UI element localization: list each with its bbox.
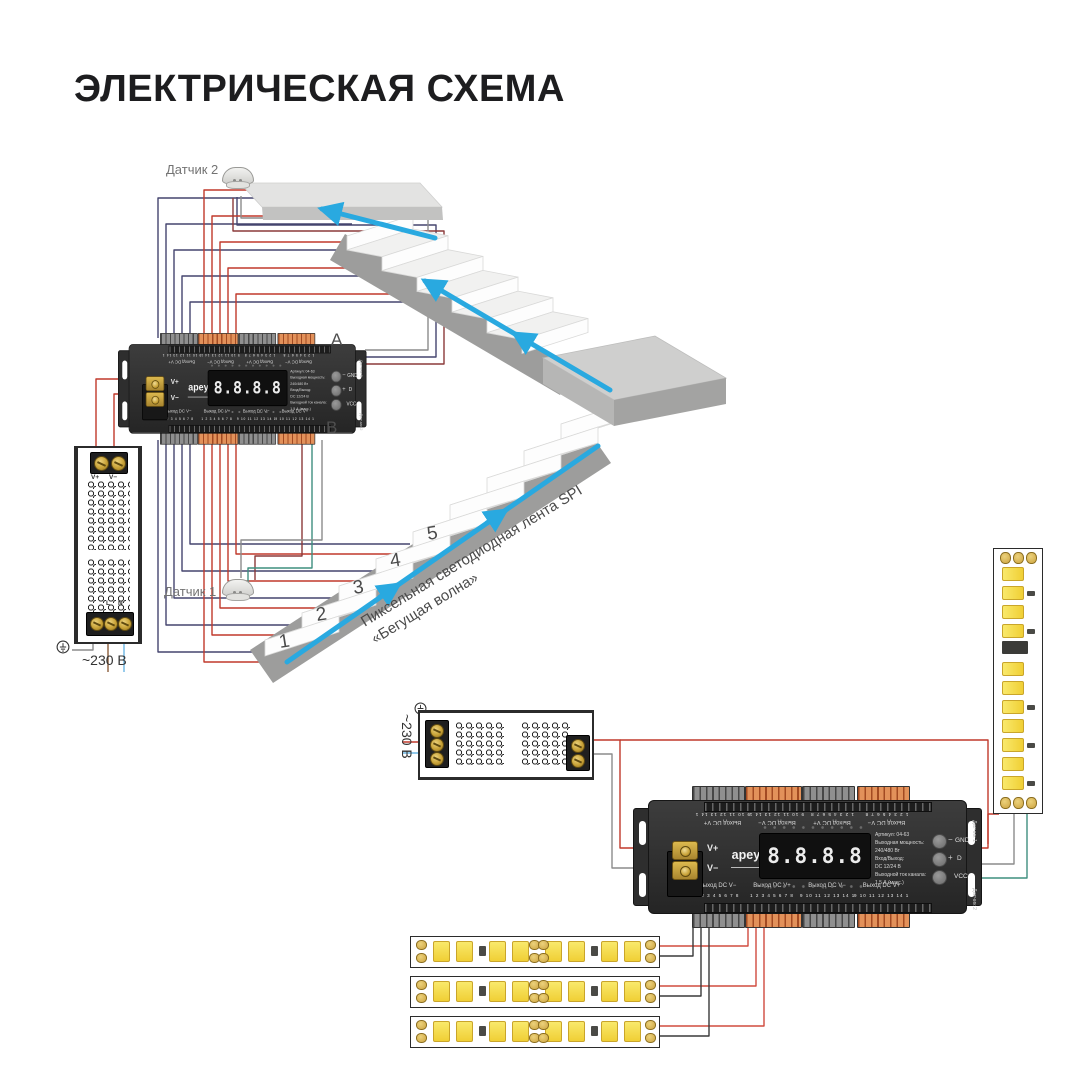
led-chip	[624, 981, 641, 1002]
up-button	[932, 852, 947, 867]
v-plus-label: V+	[91, 474, 99, 481]
led-chip	[1002, 624, 1024, 638]
terminal-block	[745, 912, 802, 928]
d-label: D	[957, 855, 962, 862]
vent-holes	[86, 480, 130, 550]
solder-pad	[1000, 552, 1011, 564]
led-chip	[1002, 719, 1024, 733]
dc-terminal-block	[90, 452, 128, 474]
resistor	[1027, 781, 1035, 786]
solder-pad	[538, 1033, 549, 1043]
ic-chip	[1002, 641, 1028, 654]
led-chip	[456, 941, 473, 962]
v-plus-screw	[571, 739, 585, 753]
led-chip	[1002, 776, 1024, 790]
solder-pad	[645, 940, 656, 950]
minus-mark: −	[342, 372, 345, 379]
sensor2-port-label: Датчик 2	[356, 401, 363, 442]
v-minus-screw	[111, 456, 126, 471]
led-chip	[1002, 681, 1024, 695]
output-a-label: A	[331, 330, 342, 350]
channel-numbers-top: 1 2 3 4 5 6 7 8 1 2 3 4 5 6 7 8 9 10 11 …	[159, 353, 317, 357]
sensor1-label: Датчик 1	[164, 584, 216, 599]
strip-power-wires	[658, 920, 764, 1026]
earth-ground-icon	[57, 641, 69, 653]
vent-dots	[761, 884, 867, 889]
v-minus-terminal	[146, 392, 165, 407]
mount-slot	[639, 873, 646, 897]
line-screw	[430, 738, 444, 752]
mains-voltage-label: ~230 В	[82, 652, 127, 668]
channel-numbers-bottom: 1 2 3 4 5 6 7 8 1 2 3 4 5 6 7 8 9 10 11 …	[159, 417, 317, 421]
channel-numbers-bottom: 1 2 3 4 5 6 7 8 1 2 3 4 5 6 7 8 9 10 11 …	[691, 893, 913, 898]
led-chip	[1002, 567, 1024, 581]
down-button	[932, 870, 947, 885]
led-chip	[624, 1021, 641, 1042]
solder-pad	[645, 980, 656, 990]
solder-pad	[1026, 552, 1037, 564]
resistor	[479, 986, 486, 996]
led-chip	[1002, 757, 1024, 771]
led-chip	[433, 981, 450, 1002]
v-plus-terminal	[672, 841, 698, 860]
v-plus-label: V+	[707, 843, 718, 853]
line-label: L	[106, 600, 110, 607]
led-chip	[489, 941, 506, 962]
terminal-block	[277, 432, 315, 445]
led-strip-2	[410, 976, 660, 1008]
plus-mark: +	[948, 853, 953, 862]
solder-pad	[538, 993, 549, 1003]
solder-pad	[538, 980, 549, 990]
dc-terminal-block	[566, 735, 590, 771]
resistor	[479, 946, 486, 956]
resistor	[591, 946, 598, 956]
controller-body: 1 2 3 4 5 6 7 8 1 2 3 4 5 6 7 8 9 10 11 …	[129, 344, 356, 434]
resistor	[591, 1026, 598, 1036]
vcc-label: VCC	[954, 873, 968, 880]
led-chip	[489, 1021, 506, 1042]
menu-button	[932, 834, 947, 849]
solder-pad	[1013, 552, 1024, 564]
controller-body: 1 2 3 4 5 6 7 8 1 2 3 4 5 6 7 8 9 10 11 …	[648, 800, 967, 914]
spec-text: Артикул: 04-63 Выходная мощность: 240/48…	[875, 831, 927, 887]
sensor2-port-label: Датчик 2	[967, 873, 977, 925]
led-strip-vertical	[993, 548, 1043, 814]
resistor	[1027, 591, 1035, 596]
mount-slot	[639, 821, 646, 845]
led-chip	[624, 941, 641, 962]
led-chip	[489, 981, 506, 1002]
solder-pad	[538, 953, 549, 963]
connector-row	[704, 802, 932, 812]
sensor1-port-label: Датчик 1	[967, 805, 977, 857]
terminal-block	[198, 432, 239, 445]
seven-segment-display: 8.8.8.8	[208, 370, 288, 406]
resistor	[1027, 743, 1035, 748]
led-chip	[1002, 662, 1024, 676]
solder-pad	[416, 953, 427, 963]
terminal-block	[238, 432, 276, 445]
led-chip	[1002, 586, 1024, 600]
solder-pad	[538, 1020, 549, 1030]
solder-pad	[538, 940, 549, 950]
solder-pad	[416, 980, 427, 990]
led-chip	[433, 1021, 450, 1042]
solder-pad	[416, 1033, 427, 1043]
terminal-block	[857, 912, 910, 928]
led-chip	[601, 981, 618, 1002]
resistor	[479, 1026, 486, 1036]
channel-numbers-top: 1 2 3 4 5 6 7 8 1 2 3 4 5 6 7 8 9 10 11 …	[691, 812, 913, 817]
solder-pad	[1026, 797, 1037, 809]
solder-pad	[645, 993, 656, 1003]
power-supply-left: V+ V− L N	[74, 446, 142, 644]
sensor1-port-label: Датчик 1	[356, 348, 363, 389]
vent-dots	[209, 364, 284, 368]
mount-slot	[122, 401, 127, 420]
led-chip	[568, 1021, 585, 1042]
neutral-screw	[430, 752, 444, 766]
resistor	[1027, 705, 1035, 710]
led-strip-3	[410, 1016, 660, 1048]
terminal-block	[692, 912, 745, 928]
v-minus-terminal	[672, 861, 698, 880]
led-chip	[512, 981, 529, 1002]
v-plus-label: V+	[171, 378, 179, 386]
v-plus-screw	[94, 456, 109, 471]
led-chip	[601, 941, 618, 962]
minus-mark: −	[948, 835, 953, 844]
black-wires	[658, 920, 709, 1036]
output-b-label: B	[326, 418, 337, 438]
v-minus-label: V−	[109, 474, 117, 481]
motion-sensor-icon	[222, 167, 254, 185]
electrical-schematic-page: 1 2 3 4 5 ЭЛЕКТРИЧЕСКАЯ СХЕМА Датчик 2 Д…	[0, 0, 1080, 1080]
led-chip	[512, 1021, 529, 1042]
solder-pad	[1000, 797, 1011, 809]
terminal-block	[802, 912, 855, 928]
solder-pad	[1013, 797, 1024, 809]
line-screw	[104, 617, 118, 631]
page-title: ЭЛЕКТРИЧЕСКАЯ СХЕМА	[74, 68, 565, 111]
connector-row	[704, 903, 932, 913]
pe-screw	[90, 617, 104, 631]
vent-holes	[454, 721, 506, 765]
motion-sensor-icon	[222, 579, 254, 597]
d-label: D	[349, 387, 352, 393]
solder-pad	[645, 1020, 656, 1030]
plus-mark: +	[342, 386, 345, 393]
led-chip	[568, 981, 585, 1002]
led-chip	[456, 1021, 473, 1042]
connector-row	[169, 425, 331, 433]
pe-screw	[430, 724, 444, 738]
led-chip	[1002, 605, 1024, 619]
led-chip	[1002, 738, 1024, 752]
power-supply-bottom	[418, 710, 594, 780]
solder-pad	[645, 953, 656, 963]
menu-button	[331, 371, 342, 383]
v-plus-terminal	[146, 376, 165, 391]
ac-terminal-block	[86, 612, 134, 636]
led-chip	[568, 941, 585, 962]
mains-voltage-label: ~230 В	[399, 714, 415, 759]
led-chip	[1002, 700, 1024, 714]
led-chip	[512, 941, 529, 962]
led-chip	[456, 981, 473, 1002]
v-minus-screw	[571, 754, 585, 768]
solder-pad	[416, 993, 427, 1003]
connector-row	[169, 346, 331, 354]
down-button	[331, 399, 342, 411]
v-minus-label: V−	[707, 863, 718, 873]
solder-pad	[416, 940, 427, 950]
vent-dots	[209, 410, 284, 414]
solder-pad	[645, 1033, 656, 1043]
solder-pad	[416, 1020, 427, 1030]
mount-slot	[122, 361, 127, 380]
neutral-screw	[118, 617, 132, 631]
v-minus-label: V−	[171, 394, 179, 402]
neutral-label: N	[118, 600, 123, 607]
spi-controller-2: 1 2 3 4 5 6 7 8 1 2 3 4 5 6 7 8 9 10 11 …	[633, 786, 980, 926]
vent-dots	[761, 825, 867, 830]
ac-terminal-block	[425, 720, 449, 768]
resistor	[591, 986, 598, 996]
resistor	[1027, 629, 1035, 634]
led-chip	[601, 1021, 618, 1042]
sensor2-label: Датчик 2	[166, 162, 218, 177]
seven-segment-display: 8.8.8.8	[759, 833, 871, 879]
terminal-block	[160, 432, 198, 445]
led-strip-1	[410, 936, 660, 968]
led-chip	[433, 941, 450, 962]
spec-text: Артикул: 04-63 Выходная мощность: 240/48…	[290, 368, 327, 412]
up-button	[331, 385, 342, 397]
vent-holes	[520, 721, 572, 765]
